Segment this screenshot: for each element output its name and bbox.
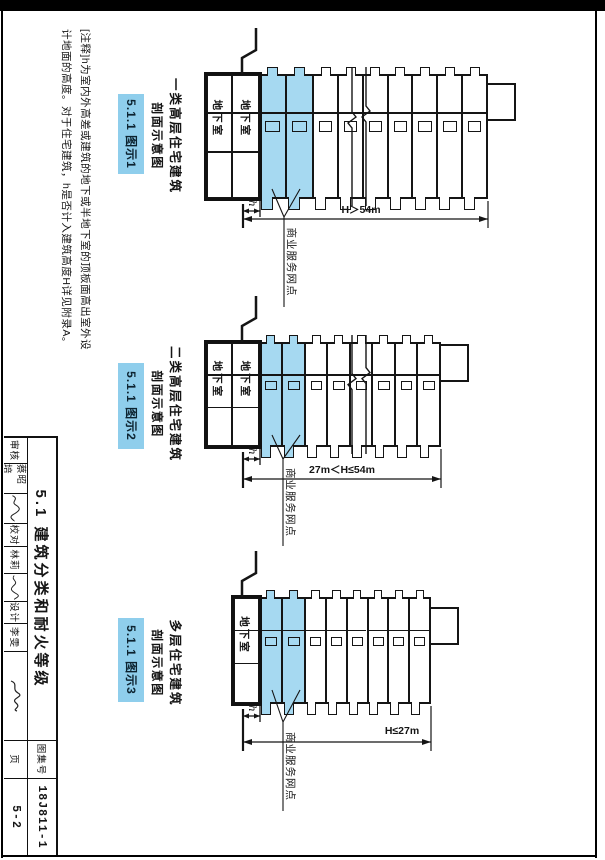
note-line-2: 计地面的高度。对于住宅建筑，h是否计入建筑高度H详见附录A。 bbox=[56, 29, 75, 350]
balcony bbox=[261, 445, 271, 458]
note-line-1: [注释]h为室内外高差或建筑的地下或半地下室的顶板面高出室外设 bbox=[75, 29, 94, 350]
window bbox=[351, 637, 362, 646]
figure-number-label: 5.1.1 图示1 bbox=[118, 94, 144, 174]
residential-floor bbox=[312, 76, 337, 197]
facade-bay bbox=[294, 67, 305, 76]
balcony bbox=[261, 702, 271, 715]
balcony bbox=[329, 445, 339, 458]
atlas-number-label-text: 图集号 bbox=[35, 744, 49, 776]
window bbox=[368, 121, 381, 132]
designer-name: 李雯 bbox=[4, 623, 27, 651]
shop-units-label: 商业服务网点 bbox=[283, 722, 298, 811]
residential-floor bbox=[361, 76, 386, 197]
residential-floor bbox=[387, 599, 408, 702]
signature-cell bbox=[4, 573, 27, 601]
residential-floor bbox=[336, 76, 361, 197]
window bbox=[287, 381, 299, 390]
facade-bay bbox=[379, 335, 388, 344]
reviewer-label-text: 审核 bbox=[8, 440, 22, 461]
page-label: 页 bbox=[4, 740, 27, 778]
window bbox=[372, 637, 383, 646]
facade-bay bbox=[334, 335, 343, 344]
interior-wall bbox=[338, 112, 361, 114]
facade-bay bbox=[353, 590, 361, 599]
balcony bbox=[348, 702, 357, 715]
window bbox=[265, 121, 280, 132]
proofreader-name: 林莉 bbox=[4, 546, 27, 573]
interior-wall bbox=[438, 112, 461, 114]
page-border-left bbox=[1, 10, 3, 858]
title-block-row-main: 5.1 建筑分类和耐火等级图集号18J811-1 bbox=[28, 438, 56, 855]
height-dimension-label: 27m＜H≤54m bbox=[287, 462, 397, 478]
diagram-title: 一类高层住宅建筑 bbox=[167, 51, 186, 221]
atlas-number-label: 图集号 bbox=[28, 740, 56, 778]
interior-wall bbox=[260, 112, 285, 114]
figure-number-label: 5.1.1 图示2 bbox=[118, 363, 144, 449]
facade-bay bbox=[289, 590, 298, 599]
h-dimension-label: h bbox=[246, 448, 258, 455]
balcony bbox=[306, 702, 315, 715]
shop-floor bbox=[281, 599, 304, 702]
atlas-number: 18J811-1 bbox=[28, 778, 56, 855]
drawing-sheet: [注释]h为室内外高差或建筑的地下或半地下室的顶板面高出室外设 计地面的高度。对… bbox=[4, 11, 594, 855]
residential-floor bbox=[461, 76, 486, 197]
page-border-bottom bbox=[1, 855, 597, 857]
residential-floor bbox=[304, 344, 327, 445]
signature-scribble bbox=[7, 574, 23, 601]
facade-bay bbox=[444, 67, 454, 76]
facade-bay bbox=[356, 335, 365, 344]
interior-wall bbox=[363, 112, 386, 114]
building-section: 地下室 bbox=[233, 597, 431, 704]
window bbox=[287, 637, 299, 646]
title-block-row-names: 审核蔡昭培校对林莉设计李雯页5-2 bbox=[4, 438, 28, 855]
window bbox=[468, 121, 481, 132]
facade-bay bbox=[320, 67, 330, 76]
balcony bbox=[411, 702, 420, 715]
window bbox=[264, 381, 276, 390]
facade-bay bbox=[311, 590, 319, 599]
shop-floor bbox=[285, 76, 312, 197]
reviewer-label: 审核 bbox=[4, 438, 27, 463]
facade-bay bbox=[395, 67, 405, 76]
scan-edge-bar bbox=[0, 0, 605, 11]
section-title-text: 5.1 建筑分类和耐火等级 bbox=[31, 489, 52, 688]
window bbox=[331, 637, 342, 646]
page-label-text: 页 bbox=[8, 754, 22, 765]
diagram-subtitle: 剖面示意图 bbox=[149, 578, 166, 748]
window bbox=[423, 381, 435, 390]
window bbox=[319, 121, 332, 132]
balcony bbox=[284, 702, 294, 715]
balcony bbox=[307, 445, 317, 458]
interior-wall bbox=[373, 374, 394, 376]
balcony bbox=[288, 197, 300, 210]
atlas-number-text: 18J811-1 bbox=[35, 785, 48, 848]
page-border-right bbox=[595, 10, 597, 858]
balcony bbox=[369, 702, 378, 715]
diagram-subtitle: 剖面示意图 bbox=[149, 51, 166, 221]
shop-floor bbox=[281, 344, 304, 445]
balcony bbox=[419, 445, 429, 458]
page-number: 5-2 bbox=[4, 778, 27, 855]
scanned-atlas-page: [注释]h为室内外高差或建筑的地下或半地下室的顶板面高出室外设 计地面的高度。对… bbox=[0, 0, 605, 860]
residential-floor bbox=[345, 599, 366, 702]
balcony bbox=[327, 702, 336, 715]
interior-wall bbox=[260, 374, 281, 376]
residential-floor bbox=[349, 344, 372, 445]
signature-scribble bbox=[7, 494, 23, 523]
designer-label: 设计 bbox=[4, 601, 27, 623]
interior-wall bbox=[396, 374, 417, 376]
diagram-title: 多层住宅建筑 bbox=[167, 578, 186, 748]
residential-floor bbox=[394, 344, 417, 445]
interior-wall bbox=[326, 630, 345, 632]
interior-wall bbox=[314, 112, 337, 114]
window bbox=[400, 381, 412, 390]
facade-bay bbox=[424, 335, 433, 344]
interior-wall bbox=[463, 112, 486, 114]
h-dimension-label: h bbox=[246, 705, 258, 712]
window bbox=[393, 121, 406, 132]
facade-bay bbox=[370, 67, 380, 76]
interior-wall bbox=[306, 630, 325, 632]
interior-wall bbox=[418, 374, 439, 376]
title-block: 5.1 建筑分类和耐火等级图集号18J811-1审核蔡昭培校对林莉设计李雯页5-… bbox=[4, 436, 58, 855]
balcony bbox=[439, 197, 450, 210]
facade-bay bbox=[266, 335, 275, 344]
window bbox=[355, 381, 367, 390]
interior-wall bbox=[283, 374, 304, 376]
residential-floor bbox=[436, 76, 461, 197]
basement-enclosure bbox=[204, 340, 262, 449]
interior-wall bbox=[410, 630, 429, 632]
facade-bay bbox=[267, 67, 278, 76]
reviewer-name-text: 蔡昭培 bbox=[4, 464, 27, 493]
balcony bbox=[464, 197, 475, 210]
interior-wall bbox=[347, 630, 366, 632]
facade-bay bbox=[266, 590, 275, 599]
h-dimension-label: h bbox=[246, 200, 258, 207]
interior-wall bbox=[287, 112, 312, 114]
residential-floor bbox=[304, 599, 325, 702]
interior-wall bbox=[283, 630, 304, 632]
page-number-text: 5-2 bbox=[9, 805, 22, 829]
proofreader-label-text: 校对 bbox=[8, 524, 22, 545]
interior-wall bbox=[389, 630, 408, 632]
designer-name-text: 李雯 bbox=[8, 627, 22, 648]
residential-floor bbox=[416, 344, 439, 445]
window bbox=[393, 637, 404, 646]
facade-bay bbox=[420, 67, 430, 76]
interior-wall bbox=[388, 112, 411, 114]
interior-wall bbox=[413, 112, 436, 114]
balcony bbox=[397, 445, 407, 458]
facade-bay bbox=[401, 335, 410, 344]
window bbox=[333, 381, 345, 390]
facade-bay bbox=[394, 590, 402, 599]
window bbox=[418, 121, 431, 132]
height-dimension-label: H＞54m bbox=[306, 202, 416, 218]
signature-scribble bbox=[7, 679, 23, 713]
interior-wall bbox=[260, 630, 281, 632]
diagram-title: 二类高层住宅建筑 bbox=[167, 319, 186, 489]
residential-floor bbox=[324, 599, 345, 702]
reviewer-name: 蔡昭培 bbox=[4, 463, 27, 493]
facade-bay bbox=[469, 67, 479, 76]
basement-enclosure bbox=[231, 595, 262, 706]
facade-bay bbox=[289, 335, 298, 344]
figure-number-label: 5.1.1 图示3 bbox=[118, 618, 144, 702]
residential-floor bbox=[411, 76, 436, 197]
proofreader-label: 校对 bbox=[4, 523, 27, 546]
residential-floor bbox=[386, 76, 411, 197]
facade-bay bbox=[311, 335, 320, 344]
window bbox=[292, 121, 307, 132]
signature-cell bbox=[4, 493, 27, 523]
residential-floor bbox=[371, 344, 394, 445]
balcony bbox=[374, 445, 384, 458]
basement-enclosure bbox=[204, 72, 262, 201]
proofreader-name-text: 林莉 bbox=[8, 549, 22, 570]
interior-wall bbox=[328, 374, 349, 376]
designer-label-text: 设计 bbox=[8, 602, 22, 623]
window bbox=[414, 637, 425, 646]
balcony bbox=[390, 702, 399, 715]
roof-bulkhead bbox=[429, 607, 459, 645]
window bbox=[343, 121, 356, 132]
interior-wall bbox=[306, 374, 327, 376]
window bbox=[443, 121, 456, 132]
residential-floor bbox=[326, 344, 349, 445]
window bbox=[310, 381, 322, 390]
balcony bbox=[352, 445, 362, 458]
interior-wall bbox=[368, 630, 387, 632]
section-title: 5.1 建筑分类和耐火等级 bbox=[28, 438, 56, 740]
interior-wall bbox=[351, 374, 372, 376]
facade-bay bbox=[373, 590, 381, 599]
balcony bbox=[284, 445, 294, 458]
balcony bbox=[261, 197, 273, 210]
note-text: [注释]h为室内外高差或建筑的地下或半地下室的顶板面高出室外设 计地面的高度。对… bbox=[56, 29, 94, 350]
facade-bay bbox=[345, 67, 355, 76]
facade-bay bbox=[415, 590, 423, 599]
shop-units-label: 商业服务网点 bbox=[283, 459, 298, 546]
diagram-subtitle: 剖面示意图 bbox=[149, 319, 166, 489]
residential-floor bbox=[366, 599, 387, 702]
shop-units-label: 商业服务网点 bbox=[284, 217, 299, 307]
window bbox=[264, 637, 276, 646]
window bbox=[310, 637, 321, 646]
height-dimension-label: H≤27m bbox=[347, 725, 457, 741]
residential-floor bbox=[408, 599, 429, 702]
facade-bay bbox=[332, 590, 340, 599]
signature-cell bbox=[4, 651, 27, 740]
window bbox=[378, 381, 390, 390]
